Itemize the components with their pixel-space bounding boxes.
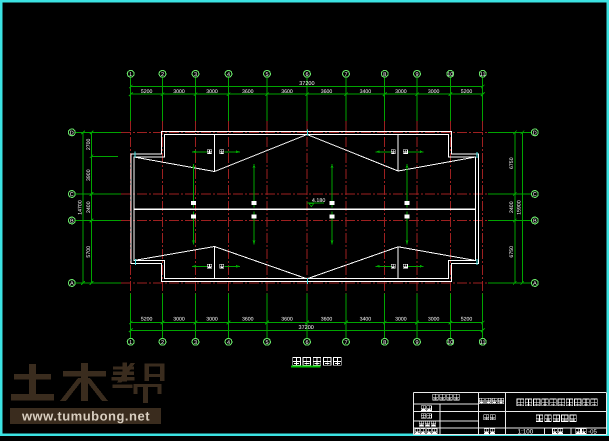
svg-text:14700: 14700	[78, 200, 84, 215]
svg-text:1:100: 1:100	[518, 428, 534, 435]
svg-text:1: 1	[129, 72, 132, 78]
svg-text:5: 5	[265, 340, 268, 346]
svg-text:www.tumubong.net: www.tumubong.net	[21, 409, 150, 424]
svg-text:1: 1	[129, 340, 132, 346]
svg-text:2400: 2400	[509, 201, 515, 213]
svg-text:3400: 3400	[360, 89, 372, 95]
svg-text:A: A	[533, 281, 537, 287]
svg-text:3000: 3000	[395, 316, 407, 322]
svg-text:5200: 5200	[141, 89, 153, 95]
svg-text:B: B	[70, 219, 74, 225]
svg-text:4: 4	[227, 72, 230, 78]
svg-text:5700: 5700	[86, 246, 92, 258]
svg-text:3000: 3000	[206, 316, 218, 322]
svg-text:3000: 3000	[173, 316, 185, 322]
svg-text:6: 6	[305, 340, 308, 346]
svg-text:15900: 15900	[517, 200, 523, 215]
svg-text:3: 3	[194, 340, 197, 346]
svg-text:3000: 3000	[428, 89, 440, 95]
svg-text:37200: 37200	[299, 325, 314, 331]
svg-text:3900: 3900	[86, 169, 92, 181]
svg-text:3000: 3000	[395, 89, 407, 95]
svg-text:B: B	[533, 219, 537, 225]
svg-text:4: 4	[227, 340, 230, 346]
svg-text:2: 2	[161, 72, 164, 78]
svg-text:7: 7	[344, 72, 347, 78]
svg-text:D: D	[70, 130, 74, 136]
svg-text:3400: 3400	[360, 316, 372, 322]
svg-text:11: 11	[480, 72, 486, 78]
svg-text:2400: 2400	[86, 201, 92, 213]
svg-text:6750: 6750	[509, 246, 515, 258]
svg-text:3000: 3000	[173, 89, 185, 95]
svg-text:6: 6	[305, 72, 308, 78]
svg-text:6750: 6750	[509, 157, 515, 169]
svg-text:5200: 5200	[141, 316, 153, 322]
svg-text:3600: 3600	[321, 89, 333, 95]
svg-text:11: 11	[480, 340, 486, 346]
svg-text:8: 8	[383, 340, 386, 346]
svg-text:3600: 3600	[242, 316, 254, 322]
svg-text:3600: 3600	[242, 89, 254, 95]
svg-text:9: 9	[415, 340, 418, 346]
svg-text:D: D	[533, 130, 537, 136]
svg-text:7: 7	[344, 340, 347, 346]
svg-text:C: C	[70, 192, 74, 198]
svg-text:3: 3	[194, 72, 197, 78]
svg-text:C: C	[533, 192, 537, 198]
svg-text:5200: 5200	[461, 316, 473, 322]
svg-text:2700: 2700	[86, 139, 92, 151]
svg-text:3000: 3000	[428, 316, 440, 322]
svg-text:5200: 5200	[461, 89, 473, 95]
svg-text:3600: 3600	[281, 89, 293, 95]
svg-text:10: 10	[447, 340, 453, 346]
svg-text:3600: 3600	[321, 316, 333, 322]
svg-text:9: 9	[415, 72, 418, 78]
svg-text:3600: 3600	[281, 316, 293, 322]
svg-text:-05: -05	[588, 428, 597, 435]
svg-text:3000: 3000	[206, 89, 218, 95]
svg-text:A: A	[70, 281, 74, 287]
svg-text:37200: 37200	[299, 81, 314, 87]
svg-text:10: 10	[447, 72, 453, 78]
svg-text:2: 2	[161, 340, 164, 346]
svg-text:5: 5	[265, 72, 268, 78]
svg-text:8: 8	[383, 72, 386, 78]
